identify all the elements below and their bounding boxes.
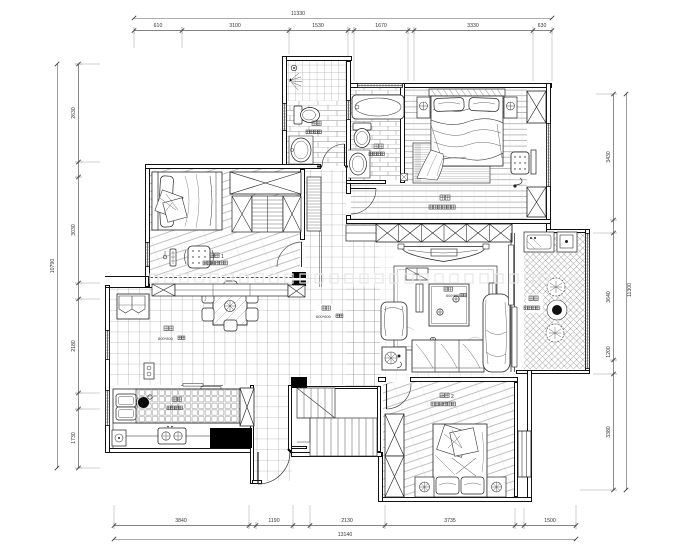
svg-text:1530: 1530 <box>312 23 324 29</box>
svg-text:1500: 1500 <box>544 518 556 524</box>
svg-text:2: 2 <box>451 394 454 400</box>
svg-text:630: 630 <box>538 23 547 29</box>
svg-text:600*600: 600*600 <box>316 314 332 319</box>
svg-text:3030: 3030 <box>71 224 77 236</box>
svg-text:1730: 1730 <box>71 432 77 444</box>
svg-text:3330: 3330 <box>467 23 479 29</box>
svg-text:2130: 2130 <box>341 518 353 524</box>
svg-text:800*800: 800*800 <box>158 336 174 341</box>
svg-text:3100: 3100 <box>229 23 241 29</box>
svg-text:3430: 3430 <box>606 151 612 163</box>
svg-text:10790: 10790 <box>50 259 56 274</box>
svg-text:3380: 3380 <box>606 426 612 438</box>
svg-text:2180: 2180 <box>71 340 77 352</box>
svg-text:1: 1 <box>221 254 224 260</box>
svg-text:3840: 3840 <box>175 518 187 524</box>
svg-text:1670: 1670 <box>375 23 387 29</box>
svg-text:13140: 13140 <box>338 532 353 538</box>
svg-text:3735: 3735 <box>444 518 456 524</box>
svg-text:1200: 1200 <box>606 346 612 358</box>
svg-text:610: 610 <box>154 23 163 29</box>
svg-text:11330: 11330 <box>291 11 305 17</box>
svg-text:3640: 3640 <box>606 291 612 303</box>
svg-text:11300: 11300 <box>627 283 633 297</box>
svg-text:600*600: 600*600 <box>446 294 460 298</box>
svg-text:1190: 1190 <box>268 518 279 524</box>
svg-text:2630: 2630 <box>71 107 77 119</box>
